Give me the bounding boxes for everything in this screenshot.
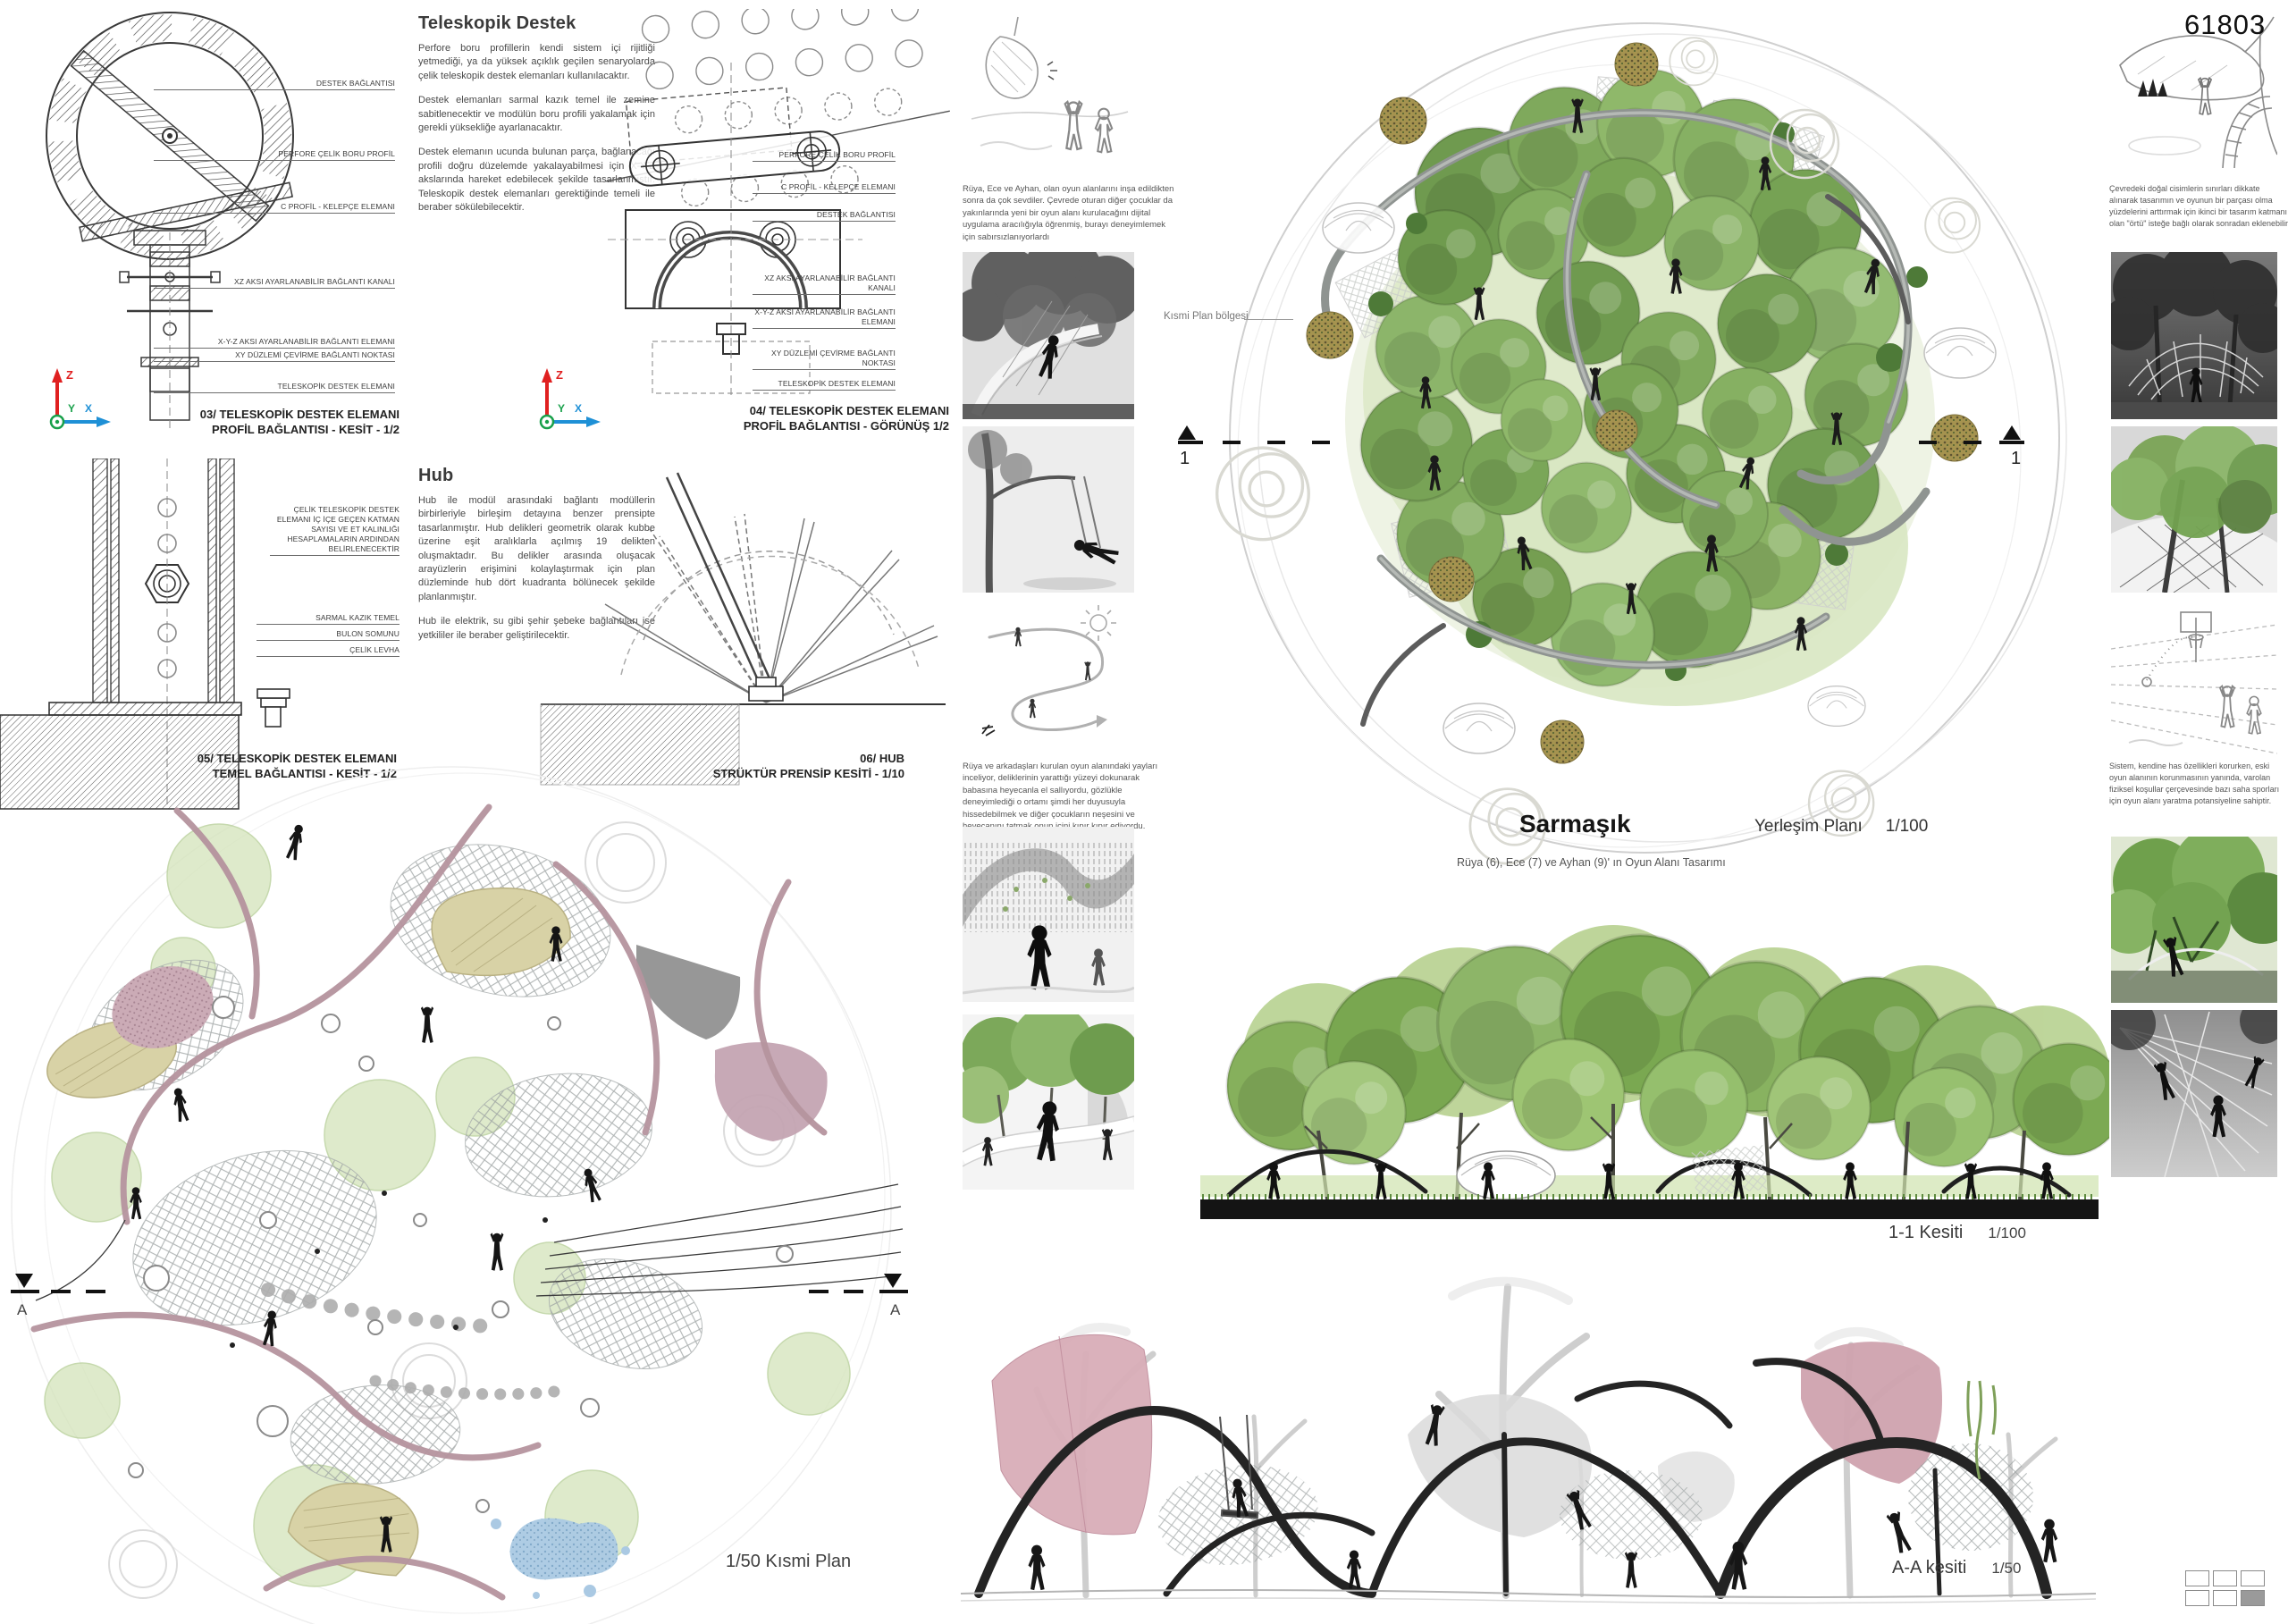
partial-plan-water (491, 1519, 630, 1599)
d04-caption: 04/ TELESKOPİK DESTEK ELEMANI PROFİL BAĞ… (645, 404, 949, 434)
section-line-dash (1312, 441, 1330, 444)
d05-label: SARMAL KAZIK TEMEL (257, 613, 400, 625)
project-title: Sarmaşık (1519, 810, 1631, 838)
d05-label: ÇELİK LEVHA (257, 645, 400, 657)
detail-03-drawing (27, 9, 331, 438)
site-plan-drawing (1211, 9, 2078, 876)
section-a-a-caption-scale: 1/50 (1991, 1560, 2021, 1577)
section-a-marker-left-bar (11, 1290, 39, 1293)
section-line-dash (1964, 441, 1981, 444)
note-sketch-basketball (2111, 600, 2277, 759)
sheet-index-logo (2185, 1570, 2265, 1606)
d05-label: ÇELİK TELESKOPİK DESTEK ELEMANI İÇ İÇE G… (270, 505, 400, 556)
section-line-dash (809, 1290, 829, 1293)
section-a-marker-right-triangle (884, 1274, 902, 1288)
detail-04-drawing (518, 9, 952, 438)
section-line-dash (1919, 441, 1937, 444)
section-1-marker-left-triangle (1178, 425, 1196, 440)
section-1-1-caption-scale: 1/100 (1988, 1224, 2026, 1241)
project-subtitle: Rüya (6), Ece (7) ve Ayhan (9)' ın Oyun … (1457, 856, 1726, 869)
section-line-dash (1267, 441, 1285, 444)
d03-label: XZ AKSI AYARLANABİLİR BAĞLANTI KANALI (154, 277, 395, 289)
d04-label: DESTEK BAĞLANTISI (753, 210, 896, 222)
elevation-trees (1227, 935, 2109, 1166)
d03-label: DESTEK BAĞLANTISI (154, 79, 395, 90)
section-1-marker-left-bar (1178, 441, 1203, 444)
right-note-2: Sistem, kendine has özellikleri korurken… (2109, 761, 2288, 807)
d03-caption-line2: PROFİL BAĞLANTISI - KESİT - 1/2 (96, 423, 400, 438)
d04-label: PERFORE ÇELİK BORU PROFİL (753, 150, 896, 162)
story-sketch-route (963, 600, 1134, 759)
section-a-a-caption: A-A kesiti1/50 (1892, 1558, 2021, 1578)
section-1-1-caption: 1-1 Kesiti1/100 (1888, 1223, 2026, 1243)
site-plan-caption: Yerleşim Planı1/100 (1754, 817, 1928, 837)
section-1-marker-right-bar (1999, 441, 2024, 444)
site-plan-caption-label: Yerleşim Planı (1754, 817, 1863, 836)
section-a-marker-left-triangle (15, 1274, 33, 1288)
note-render-rope-kids (2111, 1010, 2277, 1177)
d03-label: TELESKOPİK DESTEK ELEMANI (154, 382, 395, 393)
section-1-marker-right-number: 1 (2011, 449, 2021, 469)
d04-caption-line1: 04/ TELESKOPİK DESTEK ELEMANI (645, 404, 949, 419)
d04-caption-line2: PROFİL BAĞLANTISI - GÖRÜNÜŞ 1/2 (645, 419, 949, 434)
story-sketch-1 (963, 12, 1134, 178)
partial-plan-spring-chains (268, 1290, 554, 1394)
right-note-1: Çevredeki doğal cisimlerin sınırları dik… (2109, 183, 2288, 230)
story-render-netwave (963, 827, 1134, 1002)
sheet-index-cell (2241, 1570, 2265, 1586)
board-number: 61803 (2184, 9, 2266, 41)
d04-label: C PROFİL - KELEPÇE ELEMANI (753, 182, 896, 194)
competition-board: Z Y X DESTEK BAĞLANTISI PERFORE ÇELİK BO… (0, 0, 2288, 1624)
story-render-slide (963, 252, 1134, 419)
section-1-marker-left-number: 1 (1180, 449, 1190, 469)
section-line-dash (1223, 441, 1241, 444)
aa-pink-canopy-left (992, 1334, 1152, 1535)
section-line-dash (844, 1290, 863, 1293)
note-render-canopy-structure (2111, 426, 2277, 593)
story-render-run (963, 1014, 1134, 1190)
section-line-dash (86, 1290, 105, 1293)
story-caption-2: Rüya ve arkadaşları kurulan oyun alanınd… (963, 761, 1175, 833)
partial-plan-caption: 1/50 Kısmi Plan (726, 1552, 851, 1572)
note-render-green-climb (2111, 837, 2277, 1003)
d04-label: TELESKOPİK DESTEK ELEMANI (753, 379, 896, 391)
section-a-marker-right-letter: A (890, 1301, 900, 1319)
partial-plan-region-label: Kısmi Plan bölgesi (1164, 311, 1249, 322)
sheet-index-cell-current (2241, 1590, 2265, 1606)
d03-label: C PROFİL - KELEPÇE ELEMANI (154, 202, 395, 214)
section-1-1-drawing (1193, 880, 2109, 1241)
story-render-swing (963, 426, 1134, 593)
section-a-a-caption-label: A-A kesiti (1892, 1558, 1966, 1578)
section-a-marker-right-bar (879, 1290, 908, 1293)
d03-label: PERFORE ÇELİK BORU PROFİL (154, 149, 395, 161)
d04-label: XY DÜZLEMİ ÇEVİRME BAĞLANTI NOKTASI (753, 349, 896, 370)
sheet-index-cell (2185, 1570, 2209, 1586)
d03-caption-line1: 03/ TELESKOPİK DESTEK ELEMANI (96, 408, 400, 423)
d03-label: XY DÜZLEMİ ÇEVİRME BAĞLANTI NOKTASI (154, 350, 395, 362)
d05-label: BULON SOMUNU (257, 629, 400, 641)
section-1-marker-right-triangle (2003, 425, 2021, 440)
section-1-1-caption-label: 1-1 Kesiti (1888, 1223, 1963, 1242)
site-plan-caption-scale: 1/100 (1886, 817, 1929, 836)
d04-label: XZ AKSI AYARLANABİLİR BAĞLANTI KANALI (753, 273, 896, 295)
note-render-dark-nets (2111, 252, 2277, 419)
d03-caption: 03/ TELESKOPİK DESTEK ELEMANI PROFİL BAĞ… (96, 408, 400, 438)
story-caption-1: Rüya, Ece ve Ayhan, olan oyun alanlarını… (963, 183, 1175, 243)
d03-label: X-Y-Z AKSI AYARLANABİLİR BAĞLANTI ELEMAN… (154, 337, 395, 349)
region-leader-line (1244, 319, 1293, 320)
elevation-ground-band (1200, 1199, 2099, 1219)
sheet-index-cell (2185, 1590, 2209, 1606)
section-a-marker-left-letter: A (17, 1301, 27, 1319)
d04-label: X-Y-Z AKSI AYARLANABİLİR BAĞLANTI ELEMAN… (753, 307, 896, 329)
sheet-index-cell (2213, 1570, 2237, 1586)
partial-plan-drawing (0, 755, 912, 1624)
section-line-dash (51, 1290, 71, 1293)
sheet-index-cell (2213, 1590, 2237, 1606)
